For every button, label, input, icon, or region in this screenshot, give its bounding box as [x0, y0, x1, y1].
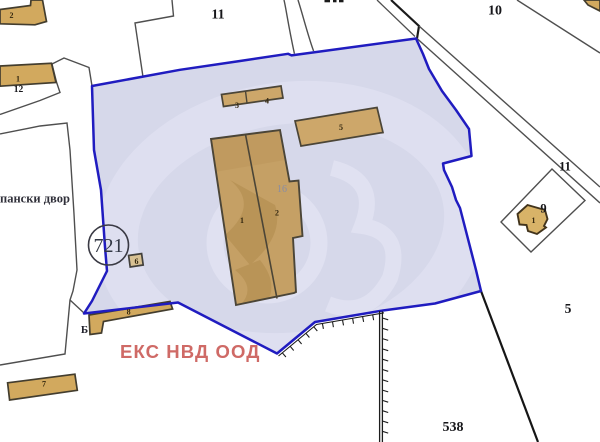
svg-text:5: 5: [339, 123, 343, 132]
svg-text:Б: Б: [81, 324, 88, 336]
svg-text:7: 7: [42, 380, 46, 389]
svg-text:2: 2: [275, 209, 279, 218]
svg-text:5: 5: [565, 301, 572, 316]
svg-text:11: 11: [211, 8, 224, 23]
svg-text:9: 9: [540, 202, 546, 216]
svg-text:721: 721: [94, 235, 124, 257]
svg-text:8: 8: [127, 308, 131, 317]
svg-text:16: 16: [277, 184, 287, 195]
svg-text:ЕКС НВД ООД: ЕКС НВД ООД: [120, 341, 261, 362]
svg-text:3: 3: [235, 101, 239, 110]
svg-text:1: 1: [240, 216, 244, 225]
svg-text:12: 12: [14, 85, 24, 95]
svg-text:6: 6: [135, 257, 139, 266]
svg-text:4: 4: [265, 97, 269, 106]
svg-text:пански двор: пански двор: [0, 192, 70, 206]
svg-text:11: 11: [559, 160, 571, 174]
svg-text:1: 1: [532, 216, 536, 225]
svg-text:1: 1: [16, 75, 20, 84]
svg-text:10: 10: [488, 4, 502, 19]
svg-text:538: 538: [443, 420, 464, 435]
svg-text:2: 2: [10, 11, 14, 20]
